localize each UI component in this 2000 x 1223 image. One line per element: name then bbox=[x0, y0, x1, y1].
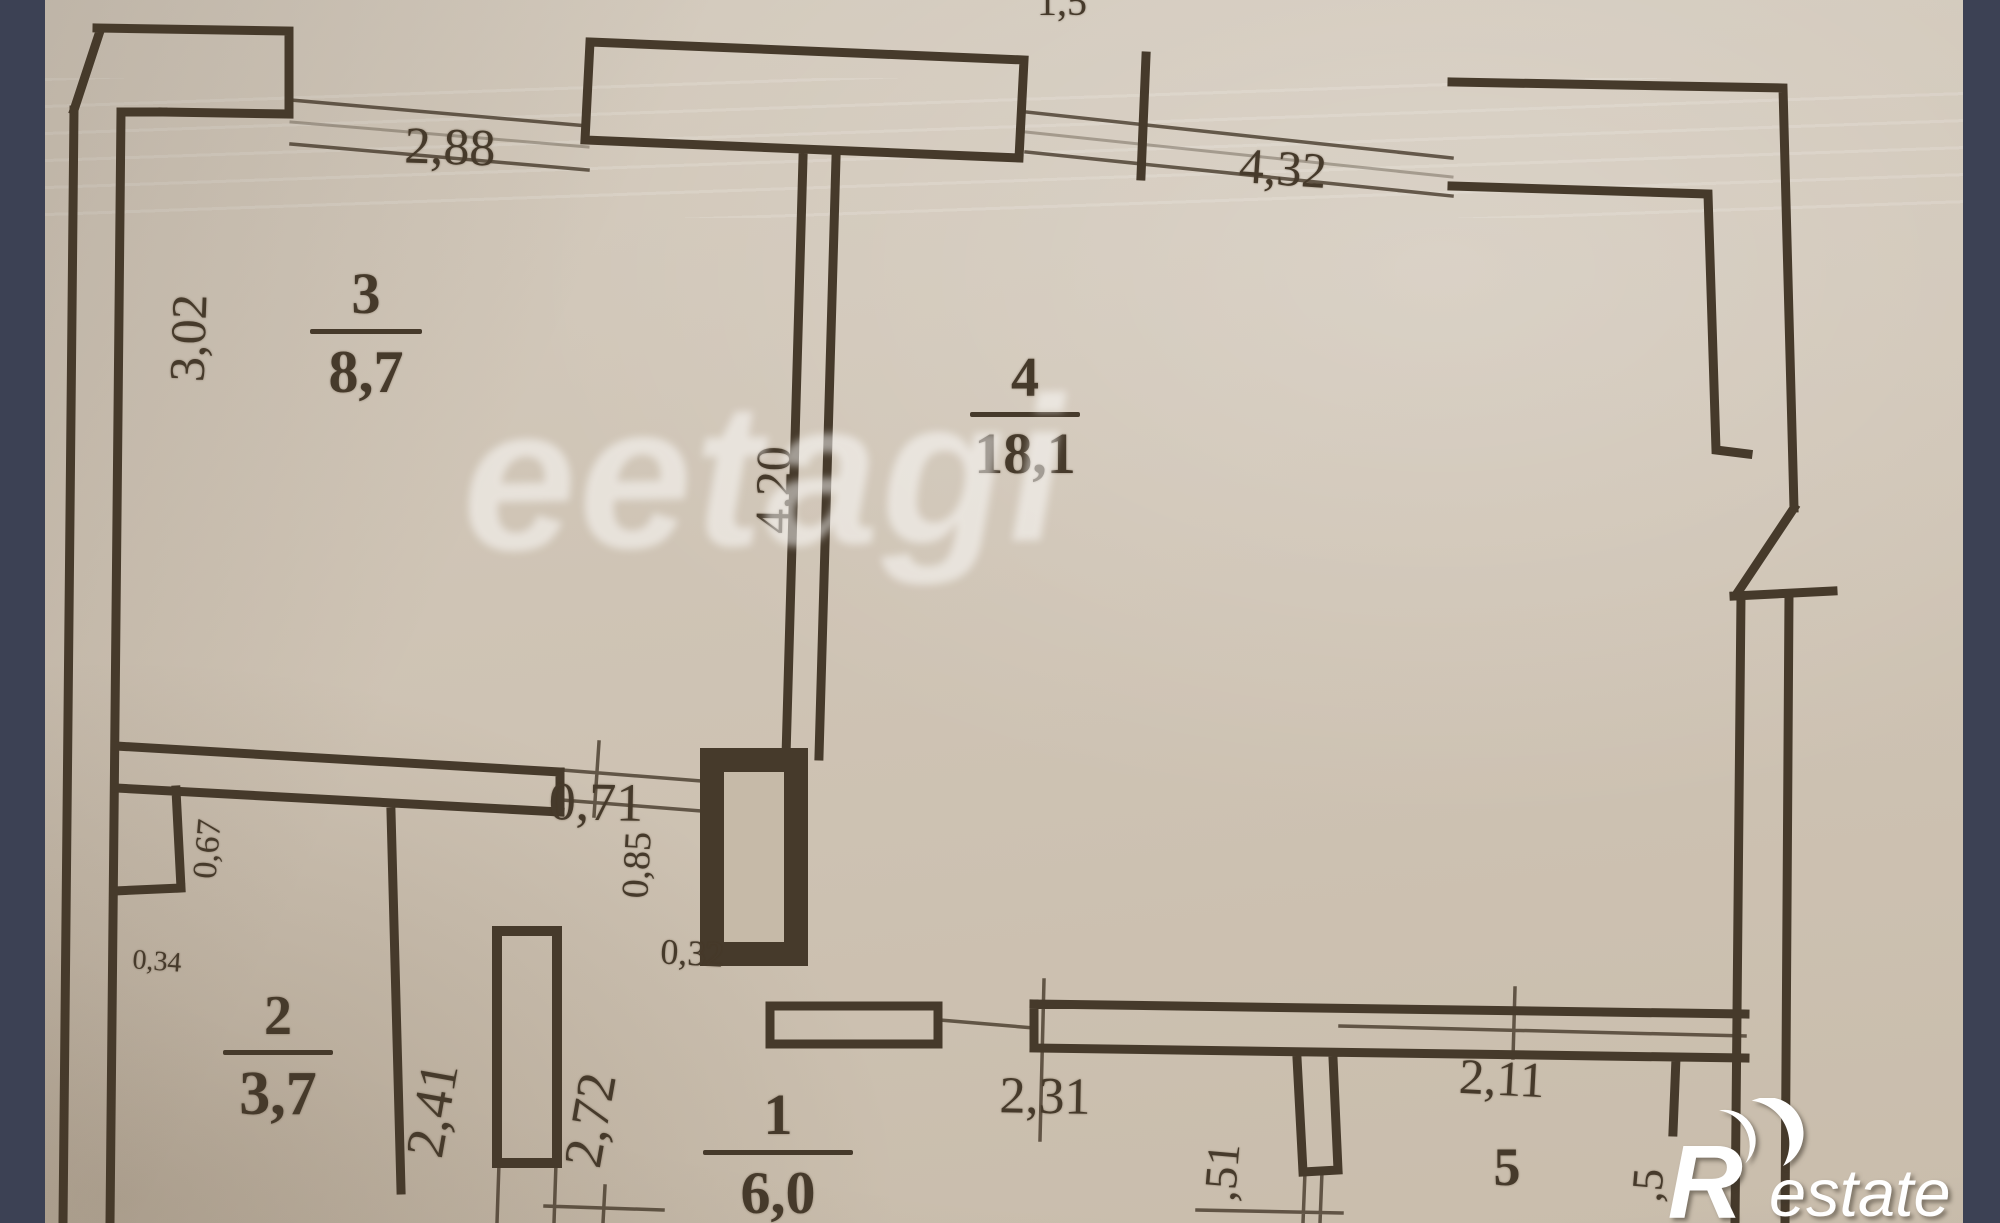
partition-wall-block bbox=[497, 931, 557, 1163]
room-1-number: 1 bbox=[703, 1086, 853, 1144]
dim-label-room3-width: 2,88 bbox=[404, 120, 497, 175]
crescent-icon bbox=[1752, 1098, 1804, 1166]
dim-label-door-depth: 0,85 bbox=[616, 831, 657, 899]
room-1-fraction-line bbox=[703, 1150, 853, 1155]
dim-label-wall-offset: 0,32 bbox=[660, 933, 725, 972]
room-1-area: 6,0 bbox=[703, 1163, 853, 1223]
restate-logo-text: estate bbox=[1769, 1157, 1951, 1223]
room-2-number: 2 bbox=[223, 988, 333, 1044]
restate-logo-initial: R bbox=[1668, 1124, 1743, 1223]
dim-label-room5-width: 2,11 bbox=[1458, 1051, 1546, 1105]
letterbox-right bbox=[1963, 0, 2000, 1223]
dim-label-room1-width: 2,31 bbox=[999, 1070, 1091, 1124]
restate-logo-graphic: R estate bbox=[1652, 1098, 2000, 1223]
room-5-number: 5 bbox=[1494, 1140, 1521, 1194]
dim-label-corridor-height: ,51 bbox=[1197, 1141, 1248, 1202]
dim-label-room4-height: 4,20 bbox=[747, 446, 799, 534]
floor-plan-photo: 1,5 2,88 4,32 3,02 4,20 0,71 0,85 0,32 0… bbox=[0, 0, 2000, 1223]
dim-label-opening-width: 0,71 bbox=[548, 774, 643, 830]
room-3-label: 3 8,7 bbox=[310, 265, 422, 402]
room-4-label: 4 18,1 bbox=[970, 350, 1080, 483]
door-block bbox=[712, 760, 796, 954]
dim-label-room3-height: 3,02 bbox=[161, 293, 214, 382]
dim-label-niche-width: 0,34 bbox=[132, 946, 183, 977]
room-1-label: 1 6,0 bbox=[703, 1086, 853, 1223]
room-3-number: 3 bbox=[310, 265, 422, 323]
room-3-fraction-line bbox=[310, 329, 422, 334]
room-5-label: 5 bbox=[1494, 1140, 1521, 1194]
room-4-fraction-line bbox=[970, 412, 1080, 417]
room-2-area: 3,7 bbox=[223, 1063, 333, 1125]
room-2-fraction-line bbox=[223, 1050, 333, 1055]
room-4-area: 18,1 bbox=[970, 425, 1080, 483]
room-4-number: 4 bbox=[970, 350, 1080, 406]
dim-label-room4-width: 4,32 bbox=[1238, 140, 1329, 196]
room-2-label: 2 3,7 bbox=[223, 988, 333, 1125]
letterbox-left bbox=[0, 0, 45, 1223]
restate-logo: R estate bbox=[1652, 1098, 2000, 1223]
dim-label-top-width: 1,5 bbox=[1037, 0, 1087, 22]
dim-label-niche-height: 0,67 bbox=[188, 818, 227, 880]
room-3-area: 8,7 bbox=[310, 342, 422, 402]
